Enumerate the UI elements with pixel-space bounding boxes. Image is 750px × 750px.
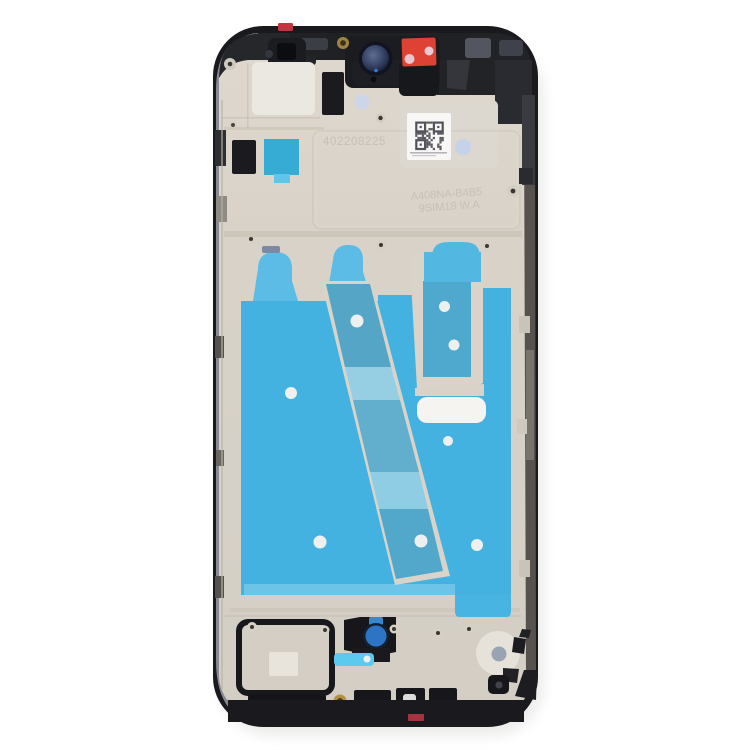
svg-text:402208225: 402208225 <box>323 136 386 148</box>
